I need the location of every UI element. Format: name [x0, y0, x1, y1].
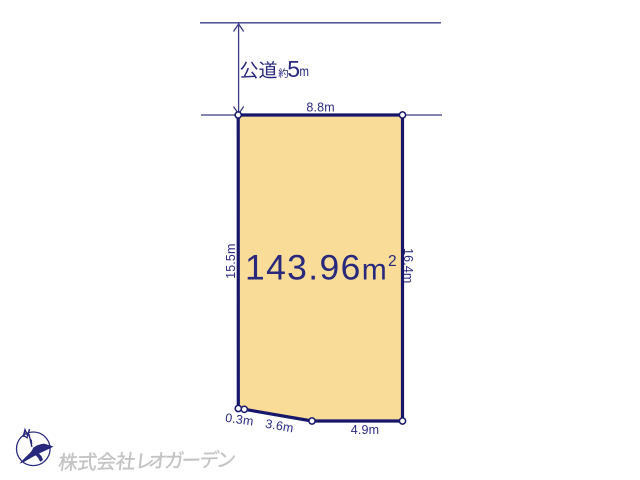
svg-text:8.8m: 8.8m	[306, 101, 334, 115]
svg-text:15.5m: 15.5m	[224, 243, 238, 279]
svg-text:3.6m: 3.6m	[264, 417, 294, 436]
svg-text:16.4m: 16.4m	[401, 248, 415, 284]
svg-text:5: 5	[287, 56, 300, 82]
svg-text:m: m	[299, 63, 309, 79]
svg-text:4.9m: 4.9m	[351, 423, 379, 437]
svg-text:0.3m: 0.3m	[224, 411, 254, 429]
svg-text:143.96m2: 143.96m2	[245, 248, 398, 288]
